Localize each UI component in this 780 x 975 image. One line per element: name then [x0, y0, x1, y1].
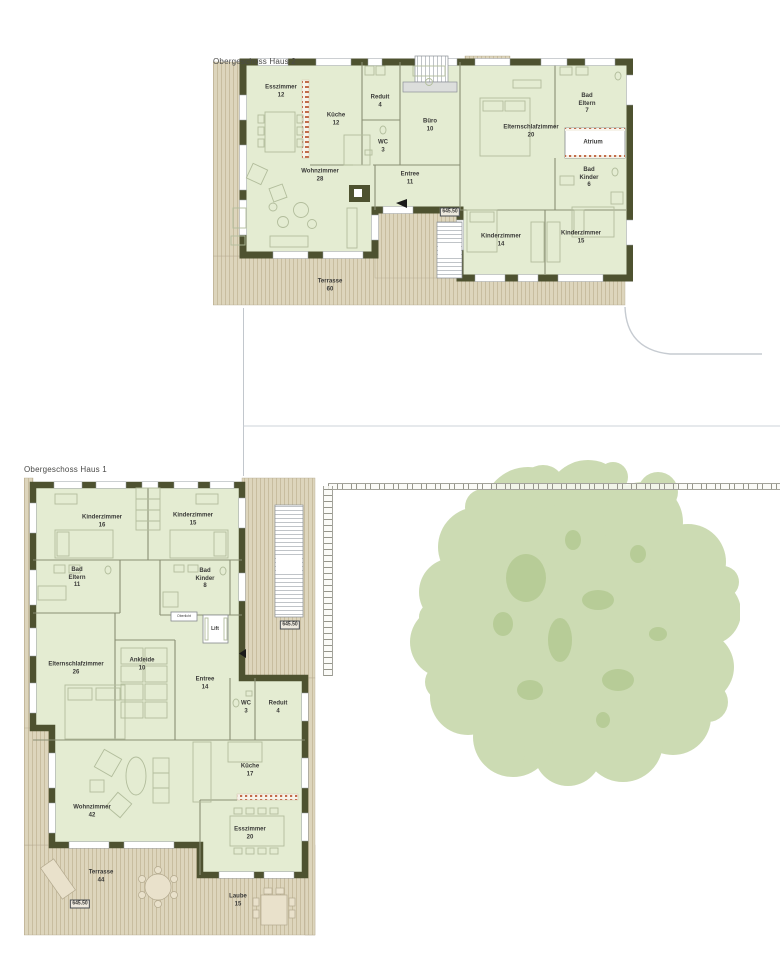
fence-line-vertical — [323, 486, 333, 676]
fence-line — [328, 483, 780, 490]
plan-title: Obergeschoss Haus 1 — [24, 465, 107, 474]
elevation-marker: 645.50 — [280, 621, 300, 630]
elevation-marker: 645.50 — [70, 900, 90, 909]
room-label-bad-eltern: Bad Eltern7 — [573, 93, 601, 116]
elevation-marker: 645.50 — [440, 208, 460, 217]
room-label-kinderzimmer-2: Kinderzimmer15 — [173, 513, 213, 528]
haus-2-labels: Esszimmer12Küche12Reduit4WC3Büro10Eltern… — [213, 50, 633, 308]
oberlicht-label: Oberlicht — [177, 614, 191, 618]
room-label-elternschlafzimmer: Elternschlafzimmer20 — [503, 125, 558, 140]
road-edge-curve — [625, 307, 762, 354]
room-label-atrium: Atrium — [583, 139, 602, 147]
room-label-kueche: Küche17 — [241, 764, 259, 779]
room-label-entree: Entree11 — [401, 172, 420, 187]
plan-title: Obergeschoss Haus 2 — [213, 57, 296, 66]
room-label-bad-kinder: Bad Kinder8 — [191, 568, 219, 591]
room-label-laube: Laube15 — [229, 894, 247, 909]
room-label-ankleide: Ankleide10 — [129, 658, 154, 673]
room-label-reduit: Reduit4 — [269, 701, 288, 716]
room-label-wohnzimmer: Wohnzimmer28 — [301, 169, 339, 184]
room-label-bad-kinder: Bad Kinder6 — [575, 167, 603, 190]
room-label-elternschlafzimmer: Elternschlafzimmer26 — [48, 662, 103, 677]
floor-plan-haus-1: Obergeschoss Haus 1 — [24, 458, 324, 938]
room-label-wohnzimmer: Wohnzimmer42 — [73, 805, 111, 820]
room-label-bad-eltern: Bad Eltern11 — [63, 567, 91, 590]
room-label-kinderzimmer-1: Kinderzimmer14 — [481, 234, 521, 249]
room-label-kinderzimmer-1: Kinderzimmer16 — [82, 515, 122, 530]
room-label-kueche: Küche12 — [327, 113, 345, 128]
tree-canopy — [410, 460, 740, 786]
tree — [408, 452, 740, 787]
room-label-terrasse: Terrasse44 — [89, 870, 114, 885]
room-label-terrasse: Terrasse60 — [318, 279, 343, 294]
room-label-kinderzimmer-2: Kinderzimmer15 — [561, 231, 601, 246]
room-label-wc: WC3 — [378, 140, 388, 155]
room-label-reduit: Reduit4 — [371, 95, 390, 110]
lift-label: Lift — [211, 626, 219, 632]
room-label-esszimmer: Esszimmer12 — [265, 85, 297, 100]
haus-1-labels: Kinderzimmer16Kinderzimmer15Bad Eltern11… — [24, 458, 324, 938]
room-label-entree: Entree14 — [196, 677, 215, 692]
room-label-wc: WC3 — [241, 701, 251, 716]
room-label-buero: Büro10 — [423, 119, 437, 134]
site-plan-canvas: Obergeschoss Haus 2 — [0, 0, 780, 975]
floor-plan-haus-2: Obergeschoss Haus 2 — [213, 50, 633, 308]
room-label-esszimmer: Esszimmer20 — [234, 827, 266, 842]
